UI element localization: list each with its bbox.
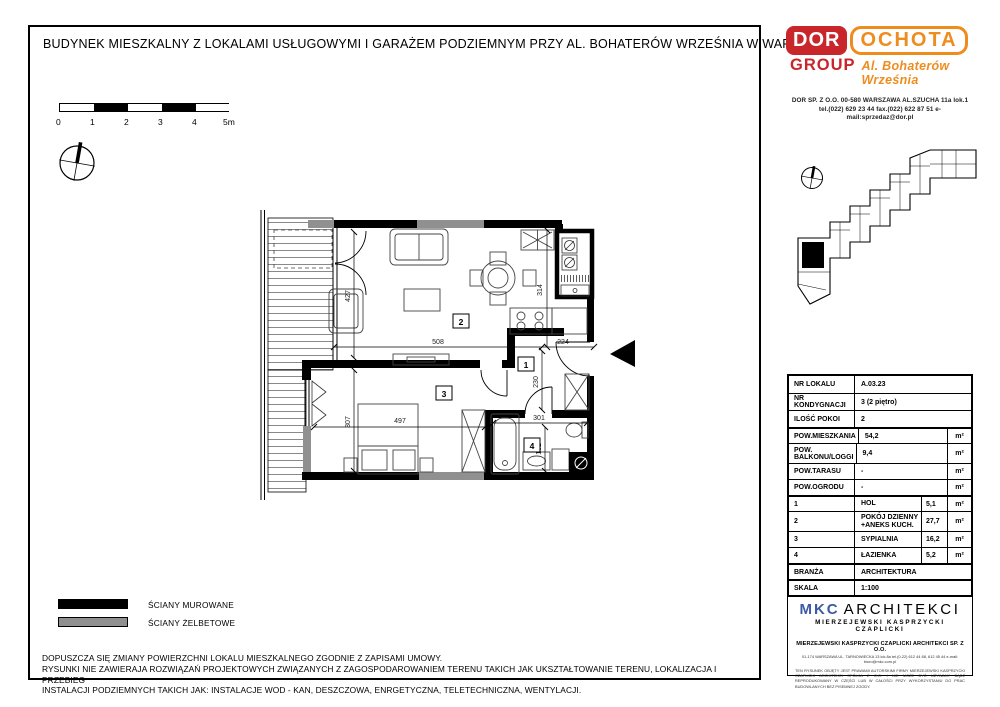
disclaimer-notes: DOPUSZCZA SIĘ ZMIANY POWIERZCHNI LOKALU … <box>42 653 748 696</box>
balcony <box>261 210 333 500</box>
drawing-frame: BUDYNEK MIESZKALNY Z LOKALAMI USŁUGOWYMI… <box>28 25 761 680</box>
architect-box: MKC ARCHITEKCI MIERZEJEWSKI KASPRZYCKI C… <box>787 595 973 676</box>
architekci-logo: ARCHITEKCI <box>844 601 961 618</box>
note-line-1: DOPUSZCZA SIĘ ZMIANY POWIERZCHNI LOKALU … <box>42 653 748 664</box>
table-row: POW.MIESZKANIA 54,2 m² <box>789 427 971 443</box>
developer-address: DOR SP. Z O.O. 00-580 WARSZAWA AL.SZUCHA… <box>786 97 974 106</box>
scale-label-4: 4 <box>192 117 197 127</box>
street-label: Al. Bohaterów Września <box>862 59 974 87</box>
table-row: 4 ŁAZIENKA 5,2 m² <box>789 547 971 563</box>
architect-address: 01-174 WARSZAWA UL. TARNOWIECKA 13 lok.8… <box>795 654 965 664</box>
table-row: POW.TARASU - m² <box>789 463 971 479</box>
coffee-table <box>404 289 440 311</box>
chair <box>490 252 506 265</box>
building-unit-divisions <box>798 150 976 290</box>
table-row: SKALA 1:100 <box>789 579 971 595</box>
dim-508: 508 <box>432 339 444 346</box>
table-row: NR LOKALU A.03.23 <box>789 376 971 393</box>
installation-shaft <box>557 231 592 297</box>
mkc-logo: MKC <box>799 601 839 618</box>
dining-table <box>481 261 515 295</box>
table-row: ILOŚĆ POKOI 2 <box>789 410 971 427</box>
nightstand <box>344 458 357 472</box>
bathroom-shaft <box>569 452 594 474</box>
key-plan-compass-icon <box>799 164 825 190</box>
balcony-door-leaf-1 <box>335 231 366 263</box>
scale-label-0: 0 <box>56 117 61 127</box>
bedroom-furniture <box>344 404 485 474</box>
entrance-arrow-icon <box>610 340 635 367</box>
dim-301: 301 <box>533 415 545 422</box>
scale-bar <box>59 103 229 112</box>
table-row: BRANŻA ARCHITEKTURA <box>789 563 971 579</box>
scale-label-2: 2 <box>124 117 129 127</box>
table-row: 2 POKÓJ DZIENNY +ANEKS KUCH. 27,7 m² <box>789 511 971 531</box>
floor-plan: 508 224 314 427 230 301 182 497 307 2 1 … <box>252 197 642 512</box>
architect-names: MIERZEJEWSKI KASPRZYCKI CZAPLICKI <box>795 619 965 633</box>
toilet <box>566 423 582 437</box>
ochota-logo-badge: OCHOTA <box>850 26 967 55</box>
note-line-2: RYSUNKI NIE ZAWIERAJA ROZWIĄZAŃ PROJEKTO… <box>42 664 748 686</box>
building-key-plan <box>790 138 986 310</box>
note-line-3: INSTALACJI PODZIEMNYCH TAKICH JAK: INSTA… <box>42 685 748 696</box>
washing-machine <box>552 449 569 470</box>
bathroom-door-swing <box>525 387 552 414</box>
chair <box>523 270 536 286</box>
table-row: NR KONDYGNACJI 3 (2 piętro) <box>789 393 971 410</box>
unit-info-table: NR LOKALU A.03.23 NR KONDYGNACJI 3 (2 pi… <box>787 374 973 597</box>
drawing-sheet: BUDYNEK MIESZKALNY Z LOKALAMI USŁUGOWYMI… <box>0 0 1000 707</box>
table-row: 3 SYPIALNIA 16,2 m² <box>789 531 971 547</box>
legend-swatch-masonry <box>58 599 128 609</box>
developer-logo: DOR OCHOTA GROUP Al. Bohaterów Września … <box>786 26 974 123</box>
room-number-living: 2 <box>459 317 464 327</box>
group-label: GROUP <box>790 56 856 75</box>
room-number-hall: 1 <box>524 360 529 370</box>
dim-427: 427 <box>345 290 352 302</box>
legend-swatch-concrete <box>58 617 128 627</box>
room-number-bedroom: 3 <box>442 389 447 399</box>
architect-copyright: TEN RYSUNEK OBJĘTY JEST PRAWAMI AUTORSKI… <box>795 668 965 689</box>
scale-label-5: 5m <box>223 117 235 127</box>
pillow <box>362 450 387 470</box>
architect-firm: MIERZEJEWSKI KASPRZYCKI CZAPLICKI ARCHIT… <box>795 641 965 653</box>
scale-label-1: 1 <box>90 117 95 127</box>
pillow <box>393 450 415 470</box>
table-row: POW.OGRODU - m² <box>789 479 971 495</box>
unit-location-marker <box>802 242 824 268</box>
scale-label-3: 3 <box>158 117 163 127</box>
nightstand <box>420 458 433 472</box>
bed <box>358 404 418 474</box>
sheet-title: BUDYNEK MIESZKALNY Z LOKALAMI USŁUGOWYMI… <box>43 37 749 51</box>
legend-label-masonry: ŚCIANY MUROWANE <box>148 600 234 610</box>
dimension-lines <box>314 230 594 471</box>
dim-307: 307 <box>345 416 352 428</box>
dim-224: 224 <box>557 339 569 346</box>
dim-497: 497 <box>394 418 406 425</box>
bedroom-door-swing <box>481 370 507 396</box>
dor-logo-badge: DOR <box>786 26 847 55</box>
legend-label-concrete: ŚCIANY ŻELBETOWE <box>148 618 235 628</box>
window-opening-symbols <box>312 381 326 426</box>
dimension-labels: 508 224 314 427 230 301 182 497 307 <box>345 284 569 455</box>
table-row: 1 HOL 5,1 m² <box>789 495 971 511</box>
table-row: POW. BALKONU/LOGGI 9,4 m² <box>789 443 971 463</box>
building-outline <box>798 150 976 304</box>
north-compass-icon <box>50 135 104 189</box>
developer-contact: tel.(022) 629 23 44 fax.(022) 622 87 51 … <box>786 106 974 123</box>
room-number-bathroom: 4 <box>530 441 535 451</box>
dim-230: 230 <box>533 376 540 388</box>
dim-314: 314 <box>537 284 544 296</box>
